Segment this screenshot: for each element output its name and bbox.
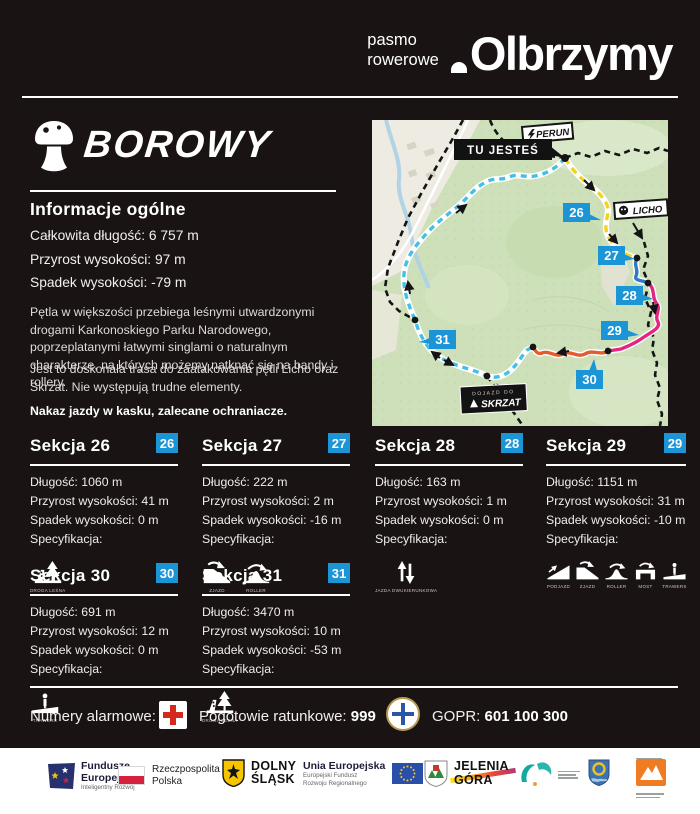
gmina-swoosh-icon xyxy=(514,758,554,790)
section-length: Długość: 1151 m xyxy=(546,473,686,492)
trail-info-board: pasmo rowerowe Olbrzymy BOROWY Informacj… xyxy=(0,0,700,814)
brand-tagline: pasmo rowerowe xyxy=(367,30,439,77)
section-drop: Spadek wysokości: 0 m xyxy=(30,511,178,530)
logo-municipal-crest xyxy=(588,759,610,786)
emergency-divider xyxy=(30,686,678,688)
section-badge: 29 xyxy=(664,433,686,453)
mountains-icon xyxy=(636,759,666,786)
section-drop: Spadek wysokości: -10 m xyxy=(546,511,686,530)
section-spec-label: Specyfikacja: xyxy=(30,660,178,679)
logo-bike-center xyxy=(636,756,666,798)
header-divider xyxy=(22,96,678,98)
roller-icon xyxy=(604,559,629,582)
trail-name: BOROWY xyxy=(82,124,274,167)
svg-text:LICHO: LICHO xyxy=(632,204,663,217)
eu-flag-icon xyxy=(392,763,423,784)
section-spec-label: Specyfikacja: xyxy=(375,530,523,549)
info-heading: Informacje ogólne xyxy=(30,199,186,220)
section-title: Sekcja 26 xyxy=(30,436,110,455)
section-drop: Spadek wysokości: 0 m xyxy=(375,511,523,530)
section-title: Sekcja 30 xyxy=(30,566,110,585)
svg-text:30: 30 xyxy=(582,372,596,387)
brand-tagline-line2: rowerowe xyxy=(367,50,439,70)
brand-tagline-line1: pasmo xyxy=(367,30,439,50)
brand-dot-icon xyxy=(451,62,467,73)
logo-small-text xyxy=(558,769,580,779)
section-gain: Przyrost wysokości: 10 m xyxy=(202,622,350,641)
section-gain: Przyrost wysokości: 1 m xyxy=(375,492,523,511)
section-drop: Spadek wysokości: -53 m xyxy=(202,641,350,660)
two-way-traffic-icon xyxy=(391,559,421,586)
blue-crest-icon xyxy=(588,759,610,786)
climb-icon xyxy=(546,559,571,582)
stat-elevation-drop: Spadek wysokości: -79 m xyxy=(30,271,199,295)
brand-logo: pasmo rowerowe Olbrzymy xyxy=(367,30,672,77)
section-spec-label: Specyfikacja: xyxy=(202,660,350,679)
safety-note: Nakaz jazdy w kasku, zalecane ochraniacz… xyxy=(30,404,287,418)
section-gain: Przyrost wysokości: 12 m xyxy=(30,622,178,641)
logo-gmina-karkonoska xyxy=(514,758,580,790)
mushroom-icon xyxy=(31,119,77,173)
spec-item: JAZDA DWUKIERUNKOWA xyxy=(375,559,437,593)
fe-flag-icon xyxy=(48,763,75,789)
dolny-slask-crest-icon xyxy=(222,759,245,787)
spec-item: MOST xyxy=(633,559,658,589)
svg-text:SKRZAT: SKRZAT xyxy=(481,397,522,410)
spec-item: ROLLER xyxy=(604,559,629,589)
logo-rzeczpospolita-polska: Rzeczpospolita Polska xyxy=(118,764,220,787)
jelenia-gora-crest-icon xyxy=(424,760,448,787)
svg-text:27: 27 xyxy=(604,248,618,263)
bridge-icon xyxy=(633,559,658,582)
section-length: Długość: 222 m xyxy=(202,473,350,492)
section-card-29: Sekcja 29 29 Długość: 1151 m Przyrost wy… xyxy=(546,436,686,589)
trail-description-2: Jest to doskonała trasa do zaatakowania … xyxy=(30,361,352,396)
svg-text:TU JESTEŚ: TU JESTEŚ xyxy=(467,144,539,157)
section-badge: 28 xyxy=(501,433,523,453)
section-length: Długość: 163 m xyxy=(375,473,523,492)
section-card-28: Sekcja 28 28 Długość: 163 m Przyrost wys… xyxy=(375,436,523,593)
section-spec-label: Specyfikacja: xyxy=(546,530,686,549)
you-are-here-label: TU JESTEŚ xyxy=(454,139,565,160)
section-length: Długość: 1060 m xyxy=(30,473,178,492)
svg-text:31: 31 xyxy=(435,332,449,347)
logo-small-text xyxy=(636,793,666,798)
logo-unia-europejska: Unia Europejska Europejski Fundusz Rozwo… xyxy=(303,760,423,787)
section-card-30: Sekcja 30 30 Długość: 691 m Przyrost wys… xyxy=(30,566,178,723)
section-card-31: Sekcja 31 31 Długość: 3470 m Przyrost wy… xyxy=(202,566,350,723)
footer-logos-bar: Fundusze Europejskie Inteligentny Rozwój… xyxy=(0,748,700,814)
trail-map-canvas: PERUN TU JESTEŚ LICHO DOJAZD DO xyxy=(372,120,668,426)
logo-dolny-slask: DOLNY ŚLĄSK xyxy=(222,759,296,787)
traverse-icon xyxy=(662,559,687,582)
section-spec-label: Specyfikacja: xyxy=(202,530,350,549)
section-length: Długość: 3470 m xyxy=(202,603,350,622)
section-title: Sekcja 27 xyxy=(202,436,282,455)
section-title: Sekcja 28 xyxy=(375,436,455,455)
title-divider xyxy=(30,190,336,192)
gopr-number: GOPR: 601 100 300 xyxy=(432,708,568,725)
descent-icon xyxy=(575,559,600,582)
svg-text:29: 29 xyxy=(607,323,621,338)
brand-name: Olbrzymy xyxy=(451,30,672,77)
licho-trail-label: LICHO xyxy=(614,199,668,219)
red-cross-icon xyxy=(159,701,187,729)
trail-stats: Całkowita długość: 6 757 m Przyrost wyso… xyxy=(30,224,199,295)
section-title: Sekcja 31 xyxy=(202,566,282,585)
emergency-label: Numery alarmowe: xyxy=(30,708,156,725)
svg-text:28: 28 xyxy=(622,288,636,303)
svg-text:26: 26 xyxy=(569,205,583,220)
section-gain: Przyrost wysokości: 41 m xyxy=(30,492,178,511)
stat-elevation-gain: Przyrost wysokości: 97 m xyxy=(30,248,199,272)
section-gain: Przyrost wysokości: 2 m xyxy=(202,492,350,511)
section-spec-label: Specyfikacja: xyxy=(30,530,178,549)
section-badge: 26 xyxy=(156,433,178,453)
poland-flag-icon xyxy=(118,766,145,785)
section-drop: Spadek wysokości: 0 m xyxy=(30,641,178,660)
section-badge: 30 xyxy=(156,563,178,583)
section-title: Sekcja 29 xyxy=(546,436,626,455)
section-gain: Przyrost wysokości: 31 m xyxy=(546,492,686,511)
section-badge: 31 xyxy=(328,563,350,583)
stat-total-length: Całkowita długość: 6 757 m xyxy=(30,224,199,248)
trail-map: PERUN TU JESTEŚ LICHO DOJAZD DO xyxy=(372,120,668,426)
ambulance-number: Pogotowie ratunkowe: 999 xyxy=(199,708,376,725)
section-length: Długość: 691 m xyxy=(30,603,178,622)
skrzat-access-label: DOJAZD DO SKRZAT xyxy=(460,384,527,414)
logo-jelenia-gora: JELENIA GÓRA xyxy=(424,760,509,787)
section-drop: Spadek wysokości: -16 m xyxy=(202,511,350,530)
section-badge: 27 xyxy=(328,433,350,453)
spec-item: ZJAZD xyxy=(575,559,600,589)
gopr-icon xyxy=(386,697,420,731)
spec-item: PODJAZD xyxy=(546,559,571,589)
spec-item: TRAWERS xyxy=(662,559,687,589)
